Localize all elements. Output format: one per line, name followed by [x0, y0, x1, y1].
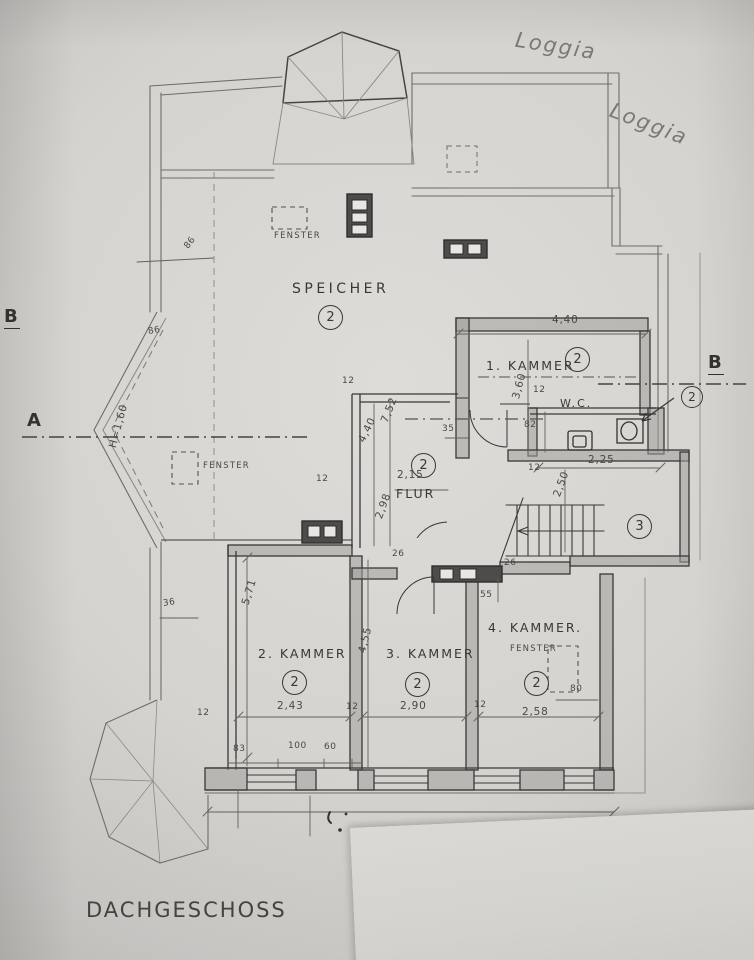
room-label-kammer1: 1. KAMMER: [486, 358, 575, 373]
dim-kammer1-width: 4,40: [552, 314, 579, 326]
paper-overlay: [350, 808, 754, 960]
dim-26-right: 26: [504, 558, 516, 568]
dim-kammer2-width: 2,43: [277, 700, 304, 712]
dim-60: 60: [324, 742, 336, 752]
dim-12-f: 12: [474, 700, 486, 710]
window-label-left: FENSTER: [203, 461, 250, 471]
window-label-kammer4: FENSTER: [510, 644, 557, 654]
zone-badge-speicher: 2: [318, 305, 343, 330]
interior-walls: [161, 318, 689, 790]
zone-badge-kammer3: 2: [405, 672, 430, 697]
floorplan-photo: Loggia Loggia SPEICHER 2 1. KAMMER 2 W.C…: [0, 0, 754, 960]
room-label-wc: W.C.: [560, 397, 592, 410]
detail-bubble: 2: [681, 386, 703, 408]
dim-12-e: 12: [346, 702, 358, 712]
wc-fixtures: [568, 419, 643, 450]
dim-flur-width: 2,15: [397, 469, 424, 481]
zone-badge-kammer4: 2: [524, 671, 549, 696]
dim-wc-width: 2,25: [588, 454, 615, 466]
room-label-flur: FLUR: [396, 486, 435, 501]
dim-12-d: 12: [197, 708, 209, 718]
dim-12-g: 12: [342, 376, 354, 386]
dim-82: 82: [524, 420, 536, 430]
dim-kammer3-width: 2,90: [400, 700, 427, 712]
room-label-speicher: SPEICHER: [292, 281, 389, 297]
room-label-kammer2: 2. KAMMER: [258, 646, 347, 661]
section-marker-b-left: B: [4, 306, 20, 329]
section-marker-b-right: B: [708, 352, 724, 375]
zone-badge-stairwell: 3: [627, 514, 652, 539]
zone-badge-kammer1: 2: [565, 347, 590, 372]
dim-83: 83: [233, 744, 245, 754]
chimneys: [302, 194, 502, 582]
zone-badge-kammer2: 2: [282, 670, 307, 695]
bay-window-top: [273, 32, 414, 164]
dim-36: 36: [162, 597, 176, 609]
stairs: [500, 498, 604, 562]
dim-80: 80: [570, 684, 582, 694]
plan-title: DACHGESCHOSS: [86, 898, 287, 922]
dimension-lines: [137, 258, 665, 836]
dim-12-c: 12: [528, 463, 540, 473]
dim-kammer4-width: 2,58: [522, 706, 549, 718]
dim-35: 35: [442, 424, 454, 434]
dim-26-left: 26: [392, 549, 404, 559]
dim-86-left: 86: [147, 325, 161, 337]
section-marker-a: A: [27, 410, 43, 431]
room-label-kammer3: 3. KAMMER: [386, 646, 475, 661]
bay-window-bottom-left: [90, 700, 208, 863]
dim-12-a: 12: [316, 474, 328, 484]
window-label-top: FENSTER: [274, 231, 321, 241]
room-label-kammer4: 4. KAMMER.: [488, 620, 582, 635]
dim-55: 55: [480, 590, 492, 600]
dim-100: 100: [288, 741, 307, 751]
dim-12-b: 12: [533, 385, 545, 395]
